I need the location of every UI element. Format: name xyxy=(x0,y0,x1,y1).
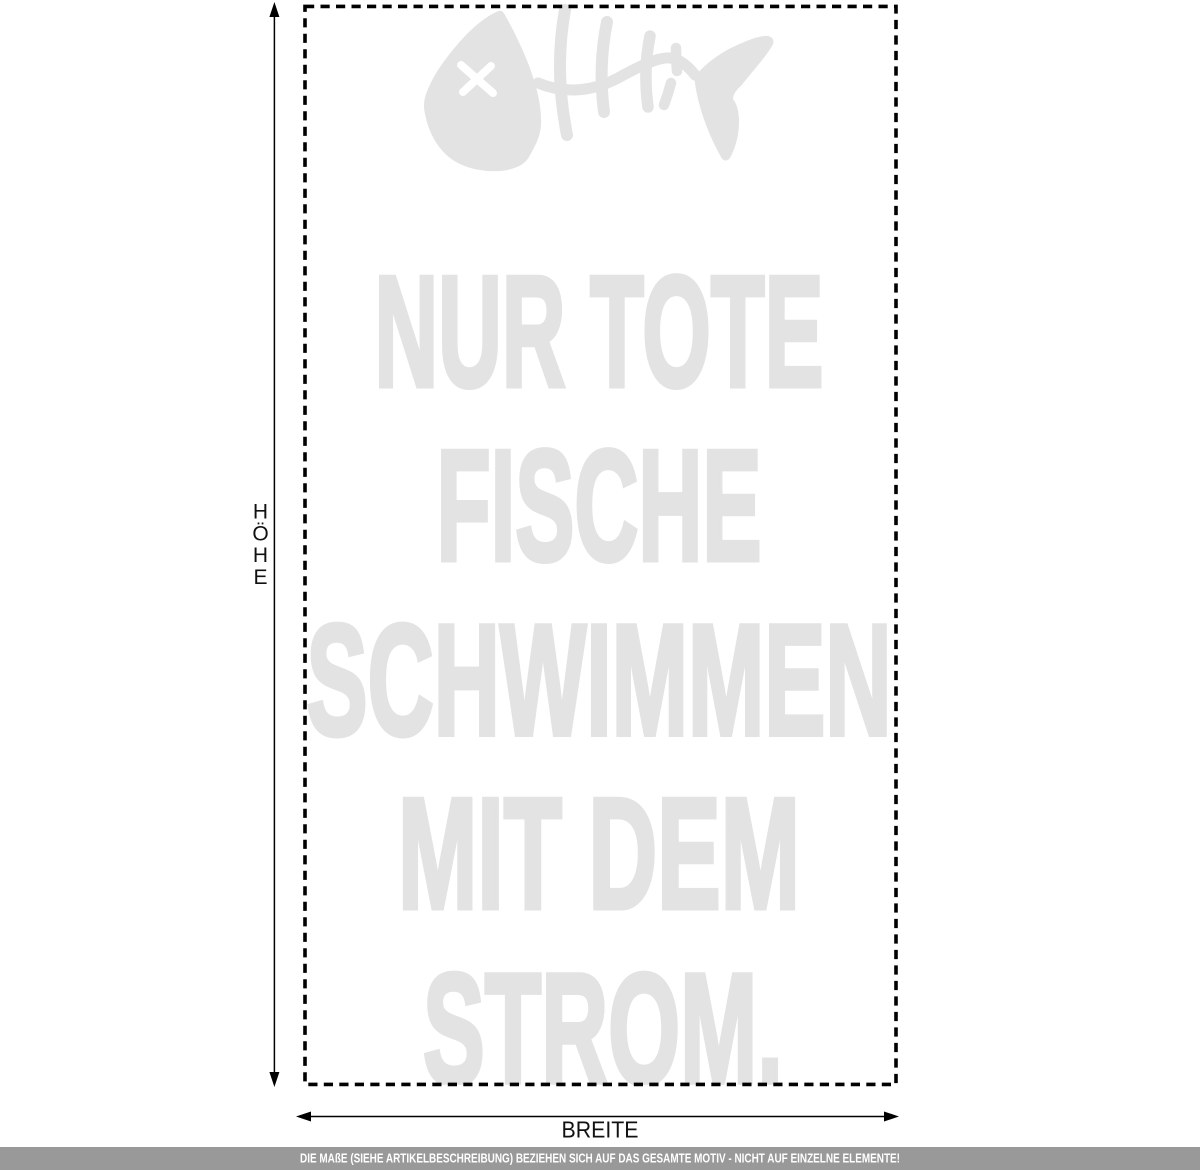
svg-text:H: H xyxy=(253,500,268,523)
svg-text:NUR TOTE: NUR TOTE xyxy=(375,244,824,420)
svg-text:FISCHE: FISCHE xyxy=(437,418,762,594)
svg-text:BREITE: BREITE xyxy=(562,1117,639,1143)
svg-text:SCHWIMMEN: SCHWIMMEN xyxy=(307,593,892,769)
svg-text:DIE MAßE (SIEHE ARTIKELBESCHRE: DIE MAßE (SIEHE ARTIKELBESCHREIBUNG) BEZ… xyxy=(300,1152,900,1166)
svg-text:H: H xyxy=(253,544,268,567)
svg-text:MIT DEM: MIT DEM xyxy=(398,766,800,942)
svg-text:E: E xyxy=(253,566,267,589)
svg-text:Ö: Ö xyxy=(252,522,268,545)
